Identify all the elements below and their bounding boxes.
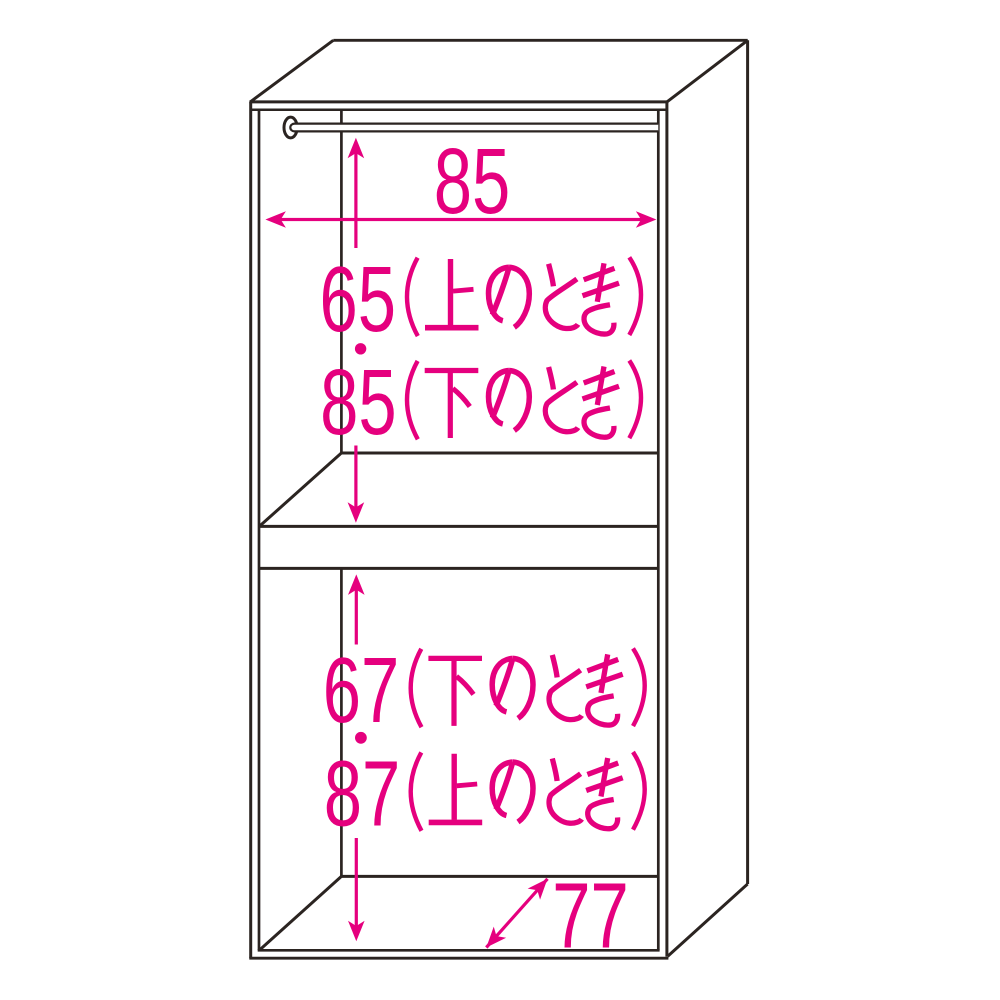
svg-text:85: 85 bbox=[434, 129, 511, 233]
svg-text:77: 77 bbox=[552, 863, 629, 967]
svg-text:85: 85 bbox=[320, 350, 397, 454]
svg-text:87: 87 bbox=[324, 742, 401, 846]
svg-text:67: 67 bbox=[323, 638, 400, 742]
svg-text:65: 65 bbox=[320, 247, 397, 351]
